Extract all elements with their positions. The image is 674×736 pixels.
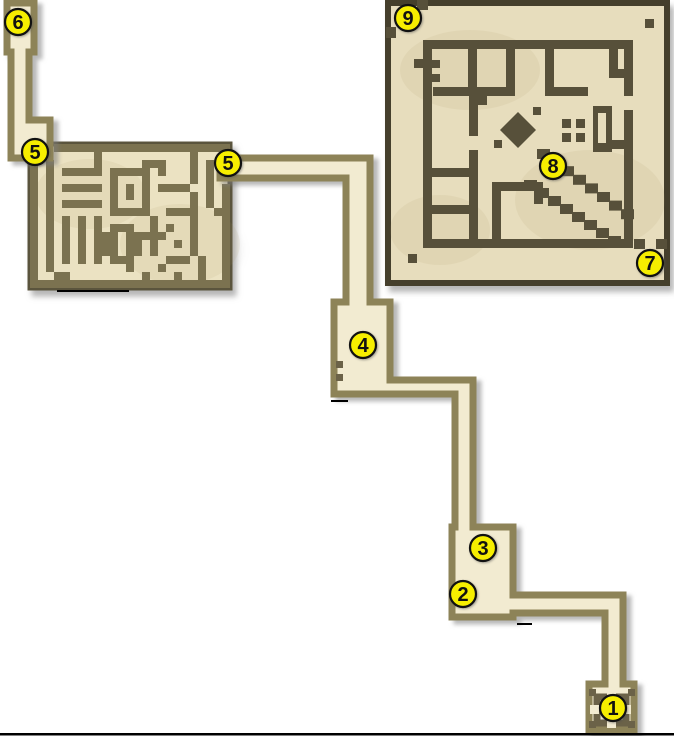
maze-wall-cell [46,168,54,176]
staircase-step [609,201,622,211]
room4-dot [336,374,343,381]
marker-label: 6 [12,12,23,34]
artifact-line [331,400,348,402]
maze-wall-cell [30,216,38,224]
hall-wall [609,69,625,78]
dot-grid [576,119,585,128]
maze-wall-cell [62,144,70,152]
staircase-step [560,204,573,214]
maze-wall-cell [94,184,102,192]
maze-wall-cell [46,224,54,232]
maze-wall-cell [94,144,102,152]
maze-wall-cell [62,224,70,232]
dot-grid [576,133,585,142]
staircase-step [584,220,597,230]
maze-wall-cell [222,216,230,224]
maze-wall-cell [182,256,190,264]
maze-wall-cell [110,208,118,216]
maze-wall-cell [30,208,38,216]
maze-wall-cell [30,224,38,232]
staircase-step [585,183,598,193]
maze-wall-cell [86,144,94,152]
room1-glyph-tab [589,689,596,696]
hall-wall [624,40,633,96]
maze-wall-cell [174,184,182,192]
corner-tooth [634,239,645,249]
maze-wall-cell [62,272,70,280]
maze-wall-cell [46,256,54,264]
maze-wall-cell [206,200,214,208]
maze-wall-cell [46,184,54,192]
maze-wall-cell [70,184,78,192]
maze-wall-cell [30,264,38,272]
maze-wall-cell [102,232,110,240]
maze-wall-cell [198,264,206,272]
maze-wall-cell [222,192,230,200]
maze-wall-cell [158,160,166,168]
maze-wall-cell [30,192,38,200]
maze-wall-cell [222,240,230,248]
maze-wall-cell [206,168,214,176]
hall-wall [433,87,515,96]
maze-wall-cell [126,192,134,200]
hall-wall [423,40,432,248]
maze-wall-cell [78,200,86,208]
hall-wall [423,40,633,49]
maze-wall-cell [190,248,198,256]
maze-wall-cell [214,144,222,152]
maze-wall-cell [70,280,78,288]
maze-wall-cell [118,224,126,232]
marker-3: 3 [470,535,496,561]
maze-wall-cell [214,208,222,216]
maze-wall-cell [62,232,70,240]
hall-wall [432,74,440,82]
marker-2: 2 [450,581,476,607]
maze-wall-cell [110,192,118,200]
maze-wall-cell [206,176,214,184]
maze-wall-cell [86,168,94,176]
maze-wall-cell [150,224,158,232]
maze-wall-cell [222,224,230,232]
maze-wall-cell [126,232,134,240]
marker-label: 9 [402,8,413,30]
maze-wall-cell [94,280,102,288]
maze-wall-cell [182,208,190,216]
maze-wall-cell [166,144,174,152]
maze-wall-cell [46,200,54,208]
maze-wall-cell [126,240,134,248]
maze-wall-cell [110,232,118,240]
great-hall [386,0,667,283]
maze-wall-cell [126,208,134,216]
marker-label: 4 [357,335,369,357]
marker-9: 9 [395,5,421,31]
maze-wall-cell [78,256,86,264]
hall-wall [469,96,478,136]
maze-wall-cell [190,168,198,176]
maze-wall-cell [70,144,78,152]
maze-wall-cell [190,280,198,288]
maze-wall-cell [118,208,126,216]
maze-wall-cell [126,184,134,192]
maze-wall-cell [126,168,134,176]
marker-4: 4 [350,332,376,358]
marker-5: 5 [22,139,48,165]
maze-wall-cell [190,192,198,200]
diamond-satellite [533,107,541,115]
hall-wall [414,59,424,68]
maze-wall-cell [94,216,102,224]
artifact-line [517,623,532,625]
marker-6: 6 [5,9,31,35]
maze-wall-cell [158,264,166,272]
maze-wall-cell [110,256,118,264]
maze-wall-cell [62,280,70,288]
maze-wall-cell [142,232,150,240]
maze-wall-cell [46,248,54,256]
maze-wall-cell [206,144,214,152]
maze-wall-cell [150,240,158,248]
maze-wall-cell [142,192,150,200]
maze-wall-cell [158,168,166,176]
maze-wall-cell [78,184,86,192]
maze-wall-cell [46,208,54,216]
maze-wall-cell [166,184,174,192]
maze-wall-cell [94,200,102,208]
maze-wall-cell [110,176,118,184]
maze-wall-cell [190,208,198,216]
maze-wall-cell [54,144,62,152]
maze-wall-cell [30,200,38,208]
maze-wall-cell [70,200,78,208]
maze-wall-cell [222,280,230,288]
maze-wall-cell [62,248,70,256]
staircase-step [597,192,610,202]
maze-wall-cell [142,184,150,192]
maze-wall-cell [126,280,134,288]
hall-wall [506,40,515,88]
maze-wall-cell [30,240,38,248]
maze-wall-cell [190,152,198,160]
room4-dot [336,361,343,368]
maze-wall-cell [222,200,230,208]
maze-wall-cell [222,272,230,280]
hall-wall [432,60,440,68]
marker-label: 5 [222,153,233,175]
maze-wall-cell [206,192,214,200]
maze-wall-cell [190,240,198,248]
maze-wall-cell [110,224,118,232]
maze-wall-cell [102,280,110,288]
maze-wall-cell [142,200,150,208]
marker-label: 7 [644,253,655,275]
maze-wall-cell [174,240,182,248]
corner-tooth [645,19,654,28]
maze-wall-cell [134,208,142,216]
hall-wall [423,239,633,248]
maze-wall-cell [150,144,158,152]
maze-wall-cell [126,264,134,272]
maze-wall-cell [134,240,142,248]
corner-tooth [386,27,396,38]
hall-wall [624,110,633,248]
marker-label: 2 [457,584,468,606]
maze-wall-cell [190,160,198,168]
maze-wall-cell [62,200,70,208]
maze-wall-cell [38,280,46,288]
maze-wall-cell [46,264,54,272]
maze-wall-cell [222,248,230,256]
hall-wall [478,96,487,105]
maze-wall-cell [86,280,94,288]
maze-wall-cell [46,216,54,224]
maze-wall-cell [46,232,54,240]
maze-wall-cell [126,224,134,232]
artifact-line [57,290,129,292]
maze-wall-cell [222,264,230,272]
staircase-step [572,212,585,222]
maze-wall-cell [62,256,70,264]
maze-wall-cell [142,160,150,168]
maze-wall-cell [46,192,54,200]
maze-wall-cell [222,184,230,192]
maze-wall-cell [142,280,150,288]
maze-wall-cell [94,152,102,160]
maze-wall-cell [134,248,142,256]
maze-wall-cell [150,216,158,224]
maze-wall-cell [46,240,54,248]
dot-grid [562,119,571,128]
maze-wall-cell [118,168,126,176]
map-canvas: 1234556789 [0,0,674,736]
maze-wall-cell [150,248,158,256]
maze-wall-cell [190,200,198,208]
corner-tooth [408,254,417,263]
staircase-step [621,209,634,219]
hall-wall [545,87,588,96]
maze-wall-cell [198,144,206,152]
maze-wall-cell [102,144,110,152]
maze-wall-cell [142,176,150,184]
corner-tooth [656,239,667,249]
hall-wall [468,40,477,88]
maze-wall-cell [78,144,86,152]
hall-wall [432,168,469,177]
maze-wall-cell [222,208,230,216]
maze-wall-cell [142,168,150,176]
hall-wall [610,140,624,149]
maze-wall-cell [174,272,182,280]
maze-wall-cell [94,168,102,176]
maze-wall-cell [110,168,118,176]
marker-1: 1 [600,695,626,721]
maze-wall-cell [142,208,150,216]
hall-wall [432,205,469,214]
maze-wall-cell [166,256,174,264]
slot-feature-inner [598,113,606,143]
maze-wall-cell [110,184,118,192]
maze-wall-cell [110,240,118,248]
maze-wall-cell [86,200,94,208]
maze-wall-cell [110,144,118,152]
maze-wall-cell [206,184,214,192]
maze-wall-cell [222,232,230,240]
maze-wall-cell [78,280,86,288]
maze-wall-cell [126,248,134,256]
maze-wall-cell [30,280,38,288]
marker-label: 5 [29,142,40,164]
staircase-step [608,236,621,246]
maze-wall-cell [126,256,134,264]
artifact-line [0,733,674,736]
maze-wall-cell [206,160,214,168]
maze-wall-cell [166,280,174,288]
maze-wall-cell [134,168,142,176]
maze-wall-cell [150,232,158,240]
room1-glyph-gap [590,705,599,714]
maze-wall-cell [190,224,198,232]
maze-wall-cell [182,280,190,288]
maze-wall-cell [142,144,150,152]
maze-wall-cell [190,232,198,240]
maze-wall-cell [46,280,54,288]
maze-wall-cell [182,144,190,152]
staircase-step [524,180,537,190]
maze-wall-cell [174,256,182,264]
maze-wall-cell [222,256,230,264]
maze-wall-cell [78,232,86,240]
marker-8: 8 [540,153,566,179]
maze-wall-cell [110,280,118,288]
marker-label: 8 [547,156,558,178]
hall-wall [469,150,478,239]
maze-wall-cell [102,248,110,256]
maze-wall-cell [62,168,70,176]
maze-wall-cell [198,272,206,280]
maze-wall-cell [94,256,102,264]
maze-wall-cell [174,144,182,152]
marker-label: 3 [477,538,488,560]
maze-room [30,144,240,288]
room1-glyph-tab [628,721,635,728]
marker-7: 7 [637,250,663,276]
maze-wall-cell [214,280,222,288]
dungeon-map: 1234556789 [0,0,674,736]
staircase-step [548,196,561,206]
maze-wall-cell [158,144,166,152]
maze-wall-cell [94,248,102,256]
maze-wall-cell [62,240,70,248]
maze-wall-cell [158,280,166,288]
marker-label: 1 [607,698,618,720]
dot-grid [562,133,571,142]
corner-tooth [417,0,428,10]
maze-wall-cell [190,216,198,224]
maze-wall-cell [78,224,86,232]
maze-wall-cell [182,184,190,192]
maze-wall-cell [110,248,118,256]
room1-glyph-tab [628,689,635,696]
maze-wall-cell [30,232,38,240]
marker-5: 5 [215,150,241,176]
maze-wall-cell [94,240,102,248]
maze-wall-cell [30,272,38,280]
maze-wall-cell [118,144,126,152]
maze-wall-cell [102,240,110,248]
maze-wall-cell [54,280,62,288]
staircase-step [536,188,549,198]
staircase-step [596,228,609,238]
maze-wall-cell [150,160,158,168]
maze-wall-cell [158,184,166,192]
maze-wall-cell [118,256,126,264]
diamond-satellite [494,140,502,148]
maze-wall-cell [134,144,142,152]
room1-glyph-tab [589,721,596,728]
maze-wall-cell [190,176,198,184]
maze-wall-cell [70,168,78,176]
maze-wall-cell [30,256,38,264]
maze-wall-cell [78,240,86,248]
maze-wall-cell [78,248,86,256]
maze-wall-cell [166,208,174,216]
maze-wall-cell [46,176,54,184]
maze-wall-cell [62,184,70,192]
hall-wall [609,49,618,70]
maze-wall-cell [86,184,94,192]
maze-wall-cell [198,256,206,264]
maze-wall-cell [126,144,134,152]
maze-wall-cell [166,224,174,232]
maze-wall-cell [94,160,102,168]
maze-wall-cell [62,216,70,224]
maze-wall-cell [158,232,166,240]
maze-wall-cell [142,272,150,280]
maze-wall-cell [198,280,206,288]
maze-wall-cell [134,232,142,240]
maze-wall-cell [94,224,102,232]
maze-wall-cell [118,280,126,288]
maze-wall-cell [30,248,38,256]
maze-wall-cell [78,216,86,224]
maze-wall-cell [134,280,142,288]
maze-wall-cell [78,168,86,176]
maze-wall-cell [30,184,38,192]
maze-wall-cell [94,232,102,240]
maze-wall-cell [150,280,158,288]
maze-wall-cell [206,280,214,288]
maze-wall-cell [54,272,62,280]
maze-wall-cell [110,200,118,208]
maze-wall-cell [174,208,182,216]
maze-wall-cell [30,168,38,176]
hall-wall [545,40,554,88]
maze-wall-cell [190,144,198,152]
maze-wall-cell [30,176,38,184]
maze-wall-cell [174,280,182,288]
staircase-step [573,175,586,185]
